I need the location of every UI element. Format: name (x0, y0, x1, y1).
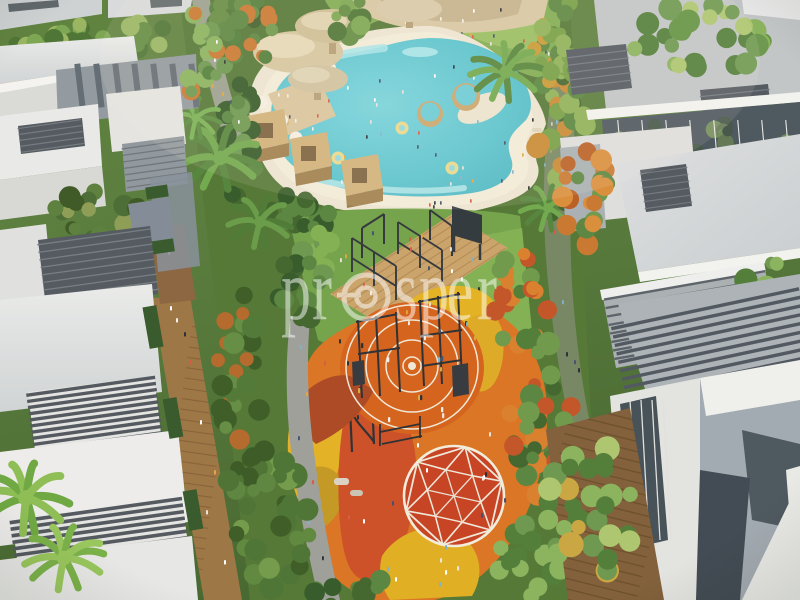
svg-text:p: p (419, 242, 449, 339)
svg-text:e: e (447, 242, 474, 339)
svg-text:p: p (281, 242, 311, 339)
svg-text:s: s (394, 242, 417, 339)
svg-text:r: r (312, 242, 332, 339)
svg-text:r: r (477, 242, 497, 339)
